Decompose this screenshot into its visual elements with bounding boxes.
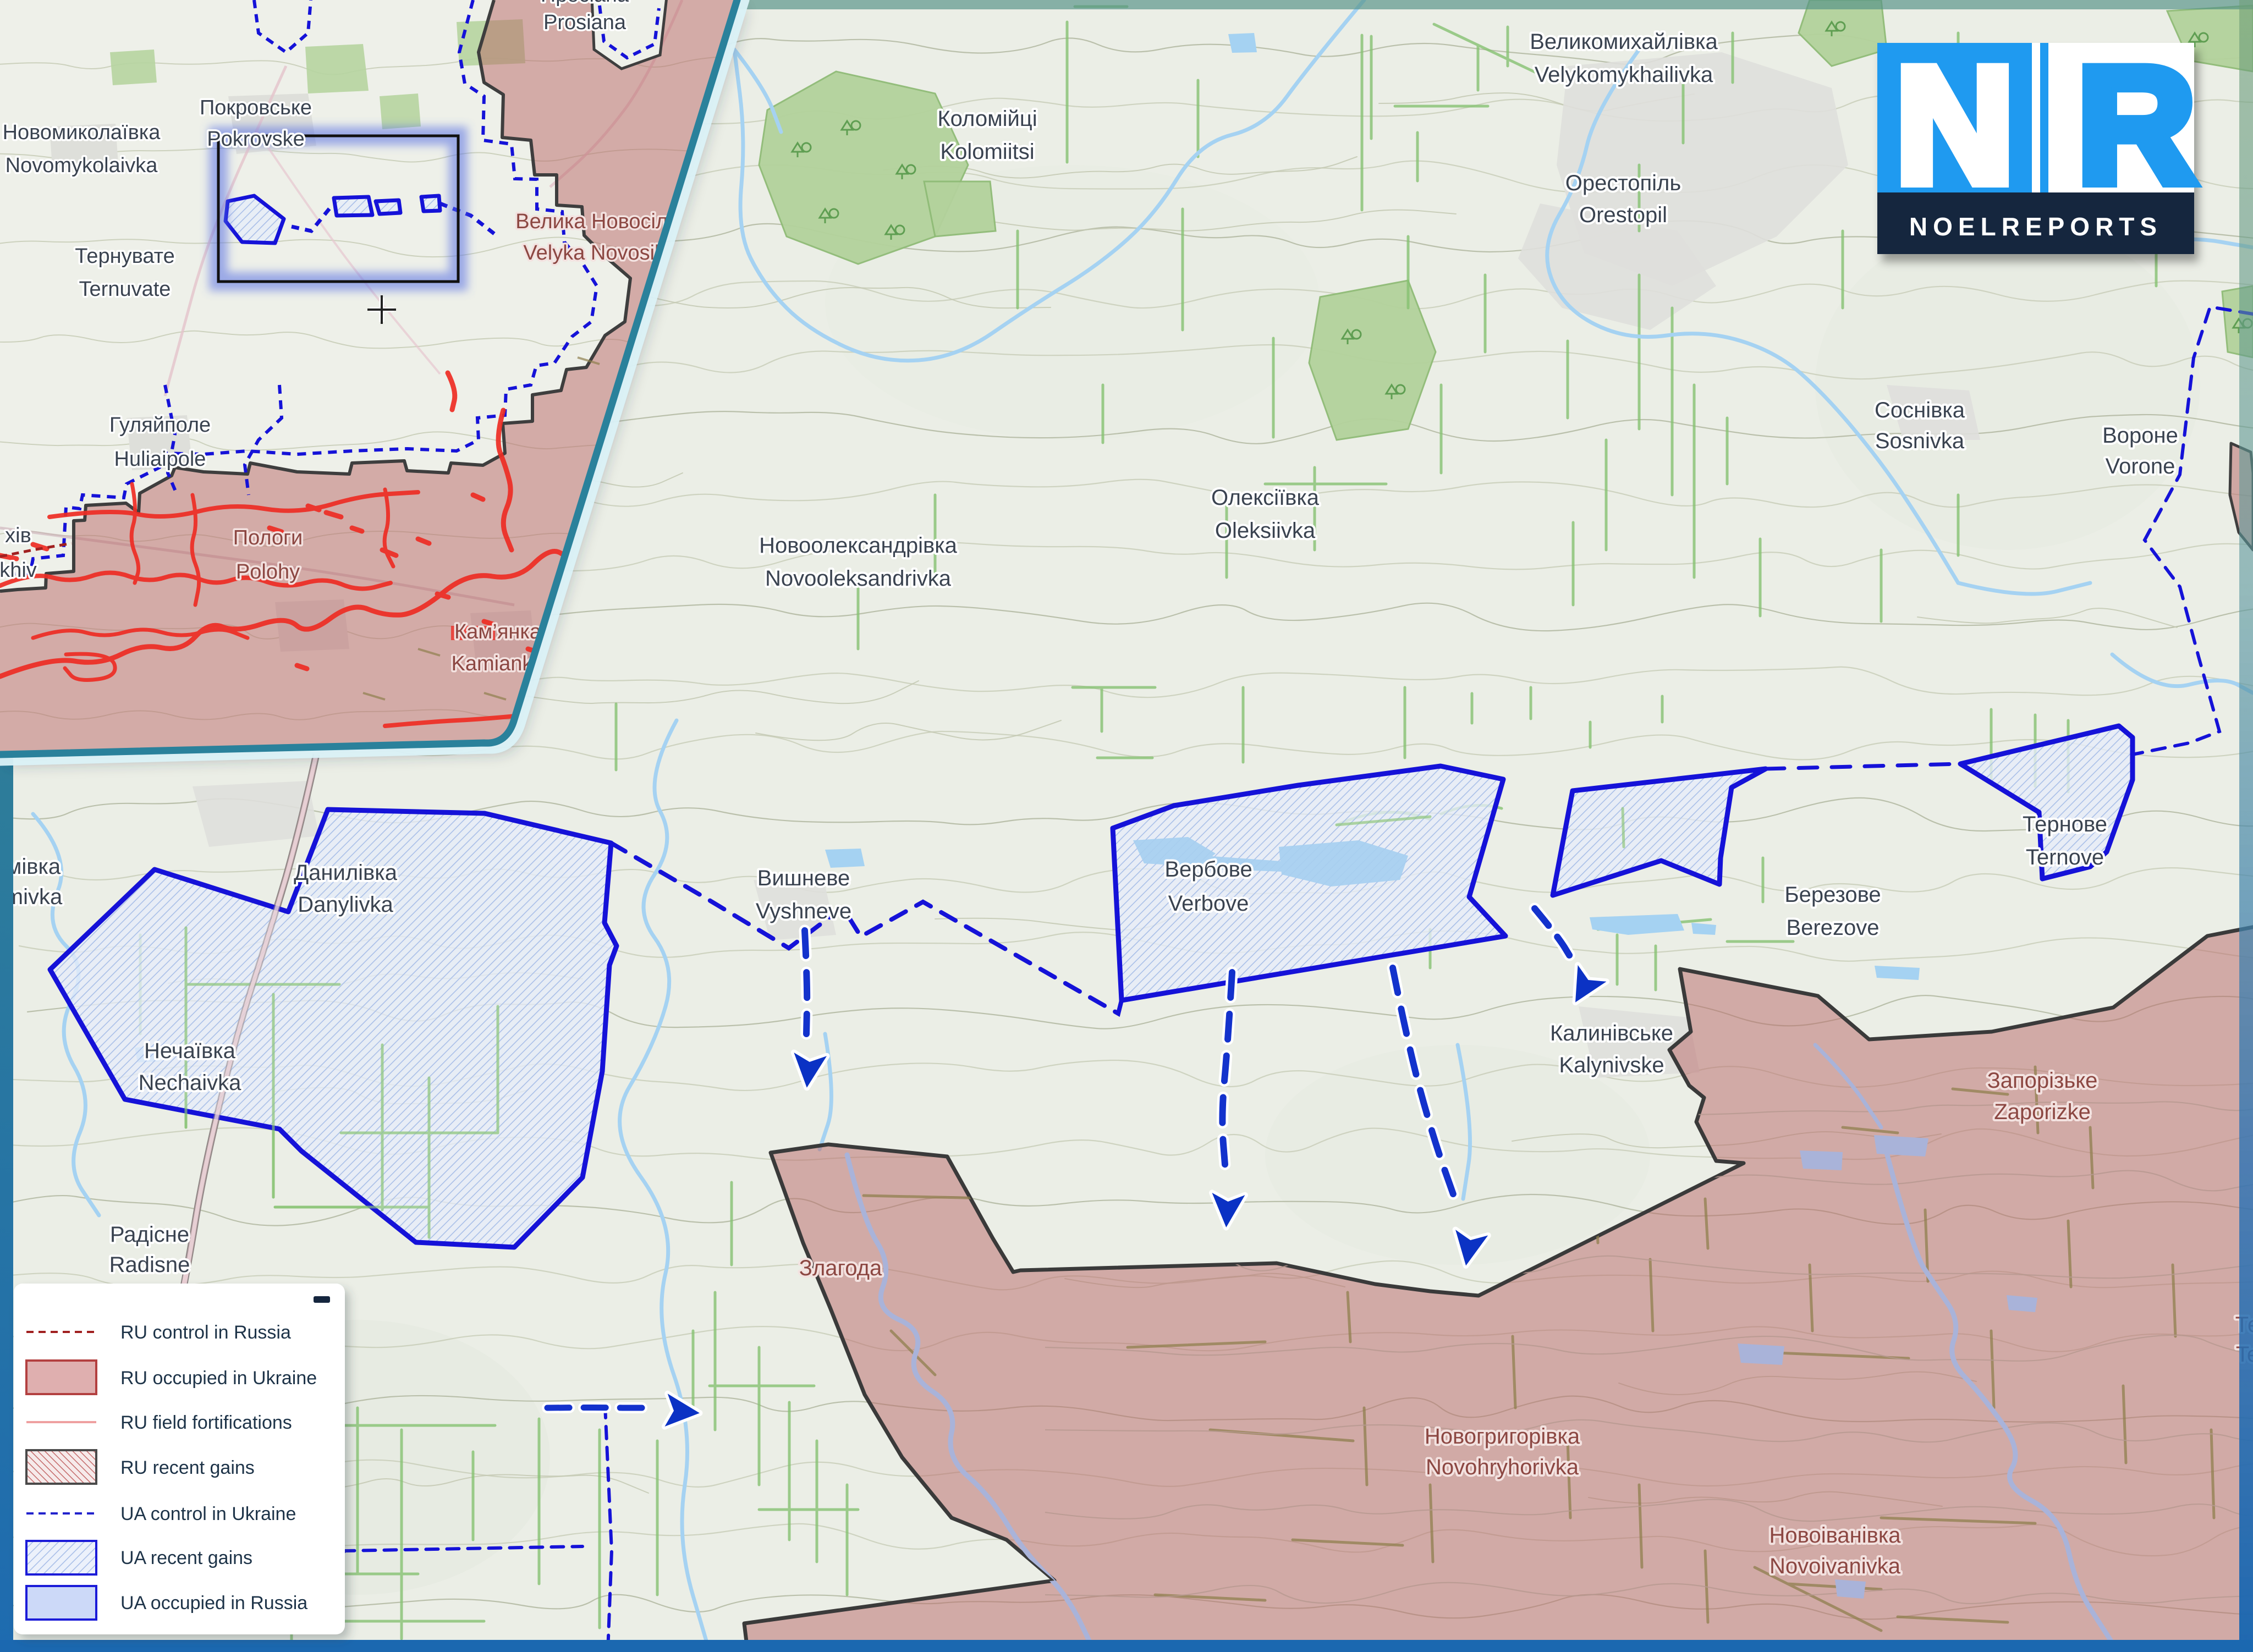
svg-text:Novomykolaivka: Novomykolaivka [6, 154, 158, 177]
svg-text:RU occupied in Ukraine: RU occupied in Ukraine [120, 1368, 317, 1389]
svg-text:Ternove: Ternove [2026, 845, 2104, 869]
svg-text:Kalynivske: Kalynivske [1559, 1053, 1664, 1077]
svg-text:Novooleksandrivka: Novooleksandrivka [765, 566, 952, 591]
svg-text:R: R [2077, 32, 2196, 217]
svg-text:Новомиколаївка: Новомиколаївка [3, 121, 161, 144]
svg-text:RU field fortifications: RU field fortifications [120, 1412, 292, 1433]
svg-text:Запорізьке: Запорізьке [1987, 1069, 2098, 1093]
svg-text:RU control in Russia: RU control in Russia [120, 1322, 291, 1343]
svg-text:Vyshneve: Vyshneve [756, 899, 851, 923]
svg-text:Кам’янка: Кам’янка [454, 620, 542, 643]
svg-text:Polohy: Polohy [236, 560, 300, 583]
svg-text:Злагода: Злагода [799, 1256, 882, 1280]
svg-text:Олексіївка: Олексіївка [1211, 486, 1320, 510]
svg-text:Velykomykhailivka: Velykomykhailivka [1535, 63, 1713, 87]
svg-text:Vorone: Vorone [2106, 454, 2175, 478]
svg-text:Radisne: Radisne [109, 1253, 190, 1277]
svg-text:Ternuvate: Ternuvate [79, 278, 171, 301]
svg-text:Данилівка: Данилівка [294, 861, 398, 885]
svg-text:mivka: mivka [5, 885, 63, 909]
svg-text:Huliaipole: Huliaipole [114, 448, 206, 471]
svg-text:Коломійці: Коломійці [937, 107, 1037, 131]
svg-text:Березове: Березове [1784, 883, 1881, 907]
svg-text:Orestopil: Orestopil [1579, 203, 1667, 227]
svg-text:мівка: мівка [7, 855, 61, 879]
svg-text:Просіана: Просіана [541, 0, 629, 7]
svg-text:Verbove: Verbove [1168, 891, 1249, 916]
svg-text:Соснівка: Соснівка [1875, 398, 1965, 422]
svg-text:Pokrovske: Pokrovske [207, 128, 304, 151]
svg-text:Novohryhorivka: Novohryhorivka [1426, 1455, 1579, 1479]
svg-text:khiv: khiv [0, 559, 37, 582]
svg-text:хів: хів [5, 524, 31, 547]
svg-text:Покровське: Покровське [200, 96, 312, 119]
svg-text:Калинівське: Калинівське [1550, 1021, 1673, 1045]
svg-text:UA control in Ukraine: UA control in Ukraine [120, 1504, 296, 1524]
svg-text:Вишневе: Вишневе [757, 866, 850, 890]
svg-text:Berezove: Berezove [1787, 916, 1880, 940]
svg-text:Гуляйполе: Гуляйполе [109, 414, 211, 437]
svg-text:Вербове: Вербове [1164, 857, 1252, 882]
svg-text:NOELREPORTS: NOELREPORTS [1909, 212, 2162, 241]
svg-text:Kolomiitsi: Kolomiitsi [940, 140, 1034, 164]
svg-text:Новоолександрівка: Новоолександрівка [759, 533, 958, 558]
svg-text:RU recent gains: RU recent gains [120, 1457, 255, 1478]
svg-text:UA recent gains: UA recent gains [120, 1548, 252, 1568]
svg-text:Пологи: Пологи [233, 526, 303, 549]
svg-text:Радісне: Радісне [110, 1223, 189, 1247]
svg-text:Нечаївка: Нечаївка [144, 1039, 236, 1063]
svg-text:Новогригорівка: Новогригорівка [1425, 1424, 1580, 1449]
svg-text:Zaporizke: Zaporizke [1994, 1100, 2091, 1124]
svg-text:Oleksiivka: Oleksiivka [1215, 519, 1316, 543]
svg-text:Вороне: Вороне [2102, 423, 2178, 448]
svg-text:UA occupied in Russia: UA occupied in Russia [120, 1593, 307, 1614]
svg-text:Danylivka: Danylivka [298, 893, 393, 917]
svg-text:Sosnivka: Sosnivka [1875, 429, 1965, 453]
svg-text:Новоіванівка: Новоіванівка [1770, 1523, 1902, 1548]
svg-text:Prosiana: Prosiana [543, 11, 627, 34]
svg-text:N: N [1895, 32, 2015, 217]
svg-text:Nechaivka: Nechaivka [139, 1071, 242, 1095]
svg-text:Тернувате: Тернувате [75, 245, 175, 268]
svg-text:Novoivanivka: Novoivanivka [1770, 1554, 1901, 1578]
svg-text:Великомихайлівка: Великомихайлівка [1530, 30, 1718, 54]
svg-text:Тернове: Тернове [2023, 812, 2107, 836]
svg-text:Орестопіль: Орестопіль [1565, 171, 1681, 195]
